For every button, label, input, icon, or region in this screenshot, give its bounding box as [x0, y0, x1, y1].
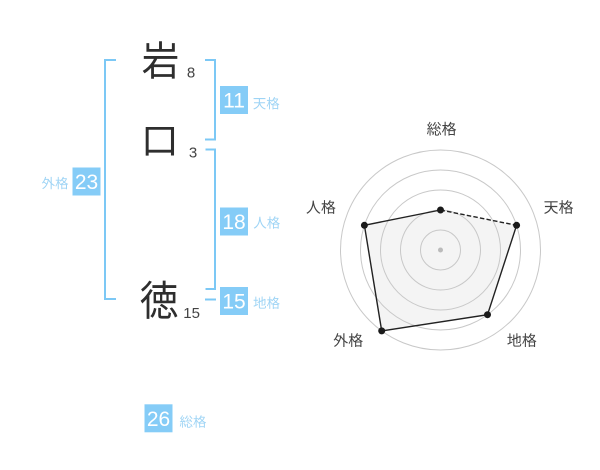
svg-text:26: 26 — [147, 408, 170, 431]
svg-text:15: 15 — [222, 291, 245, 314]
svg-text:11: 11 — [223, 90, 245, 113]
svg-text:3: 3 — [189, 145, 197, 162]
svg-text:18: 18 — [222, 211, 245, 234]
svg-text:23: 23 — [75, 171, 98, 194]
svg-text:8: 8 — [187, 64, 195, 81]
svg-text:15: 15 — [183, 305, 200, 322]
